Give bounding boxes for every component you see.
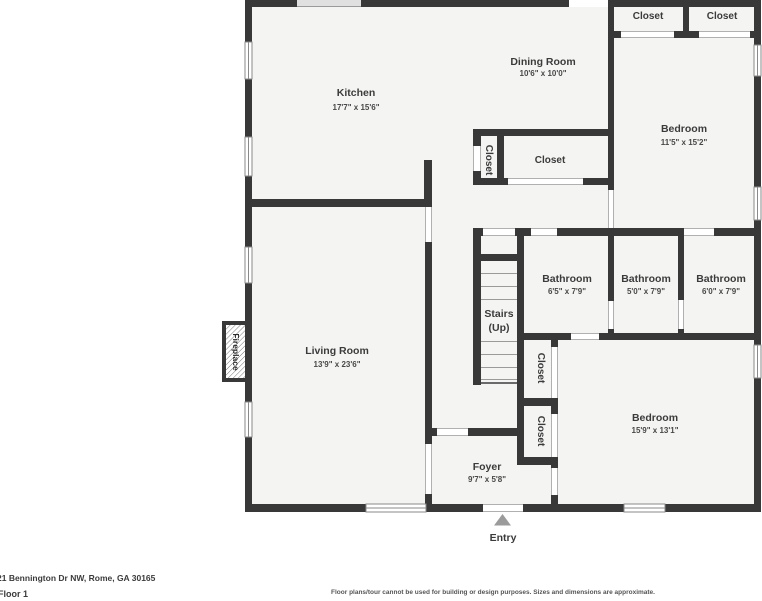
svg-text:15'9" x 13'1": 15'9" x 13'1" [632, 426, 679, 435]
svg-text:17'7" x 15'6": 17'7" x 15'6" [333, 103, 380, 112]
svg-text:9'7" x 5'8": 9'7" x 5'8" [468, 475, 506, 484]
svg-text:Fireplace: Fireplace [231, 333, 241, 371]
svg-text:Bathroom: Bathroom [621, 273, 671, 285]
svg-text:Bathroom: Bathroom [542, 273, 592, 285]
svg-text:Stairs: Stairs [484, 308, 513, 320]
svg-text:Dining Room: Dining Room [510, 56, 575, 68]
svg-text:13'9" x 23'6": 13'9" x 23'6" [314, 360, 361, 369]
svg-text:(Up): (Up) [489, 322, 510, 334]
svg-text:Bedroom: Bedroom [632, 412, 678, 424]
svg-text:21 Bennington Dr NW, Rome, GA: 21 Bennington Dr NW, Rome, GA 30165 [0, 573, 156, 583]
svg-text:Foyer: Foyer [473, 461, 502, 473]
svg-text:Closet: Closet [535, 416, 546, 447]
svg-text:10'6" x 10'0": 10'6" x 10'0" [520, 69, 567, 78]
svg-text:Kitchen: Kitchen [337, 87, 376, 99]
svg-text:Floor plans/tour cannot be use: Floor plans/tour cannot be used for buil… [331, 589, 655, 596]
svg-text:Closet: Closet [483, 145, 494, 176]
svg-text:Closet: Closet [707, 11, 738, 22]
svg-text:Bathroom: Bathroom [696, 273, 746, 285]
svg-text:Living Room: Living Room [305, 345, 369, 357]
svg-text:11'5" x 15'2": 11'5" x 15'2" [661, 138, 708, 147]
svg-text:Bedroom: Bedroom [661, 123, 707, 135]
svg-text:5'0" x 7'9": 5'0" x 7'9" [627, 287, 665, 296]
svg-text:Entry: Entry [490, 532, 517, 544]
svg-text:Closet: Closet [535, 155, 566, 166]
svg-text:6'5" x 7'9": 6'5" x 7'9" [548, 287, 586, 296]
svg-text:Floor 1: Floor 1 [0, 589, 28, 599]
svg-text:Closet: Closet [633, 11, 664, 22]
svg-text:6'0" x 7'9": 6'0" x 7'9" [702, 287, 740, 296]
svg-text:Closet: Closet [535, 353, 546, 384]
